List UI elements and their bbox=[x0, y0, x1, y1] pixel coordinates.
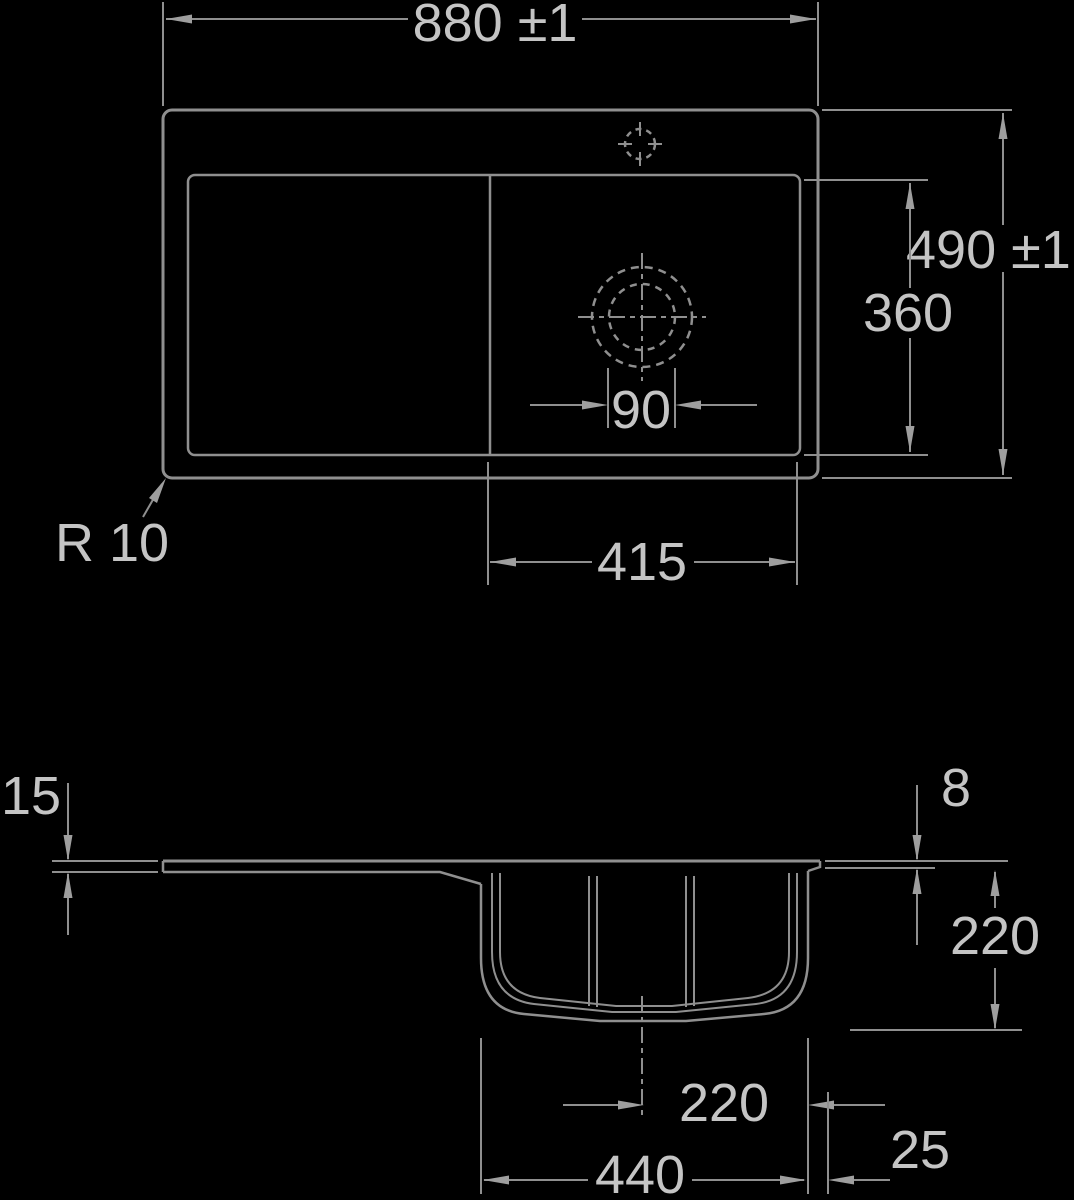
dim-label-basin-depth: 360 bbox=[863, 283, 953, 343]
dim-label-overall-width: 880 ±1 bbox=[413, 0, 578, 53]
dim-label-corner-radius: R 10 bbox=[55, 513, 169, 573]
plan-view: 880 ±1 490 ±1 360 415 bbox=[55, 0, 1071, 592]
bowl-inner-wall-a bbox=[492, 873, 797, 1012]
drain-symbol bbox=[578, 253, 706, 381]
dim-label-rim-height-right: 8 bbox=[941, 758, 971, 818]
callout-corner-radius: R 10 bbox=[55, 478, 169, 573]
dim-rim-height-left: 15 bbox=[1, 766, 158, 935]
dim-bowl-depth: 220 bbox=[850, 870, 1040, 1030]
dim-drain-diameter: 90 bbox=[530, 368, 757, 440]
section-view: 15 8 220 220 bbox=[1, 758, 1040, 1200]
dim-label-edge-offset: 25 bbox=[890, 1120, 950, 1180]
bowl-outer-wall bbox=[481, 871, 808, 1021]
drawing-canvas: 880 ±1 490 ±1 360 415 bbox=[0, 0, 1074, 1200]
dim-label-bowl-depth: 220 bbox=[950, 906, 1040, 966]
dim-overall-width: 880 ±1 bbox=[163, 0, 818, 106]
dim-label-basin-width: 415 bbox=[597, 532, 687, 592]
rim-underside-left bbox=[163, 872, 481, 884]
dim-label-rim-height-left: 15 bbox=[1, 766, 61, 826]
dim-label-drain-center-offset: 220 bbox=[679, 1073, 769, 1133]
basin-recess-outline bbox=[188, 175, 800, 455]
dim-drain-center-offset: 220 bbox=[563, 1073, 885, 1133]
bowl-inner-wall-b bbox=[500, 873, 789, 1006]
dim-label-overall-depth: 490 ±1 bbox=[906, 220, 1071, 280]
dim-label-bowl-width-section: 440 bbox=[595, 1145, 685, 1200]
dim-basin-width-plan: 415 bbox=[488, 462, 797, 592]
dim-label-drain-diameter: 90 bbox=[611, 380, 671, 440]
technical-drawing: 880 ±1 490 ±1 360 415 bbox=[0, 0, 1074, 1200]
dim-edge-offset: 25 bbox=[828, 1092, 950, 1194]
bowl-section-lines bbox=[589, 876, 694, 1007]
faucet-hole-symbol bbox=[618, 122, 662, 166]
